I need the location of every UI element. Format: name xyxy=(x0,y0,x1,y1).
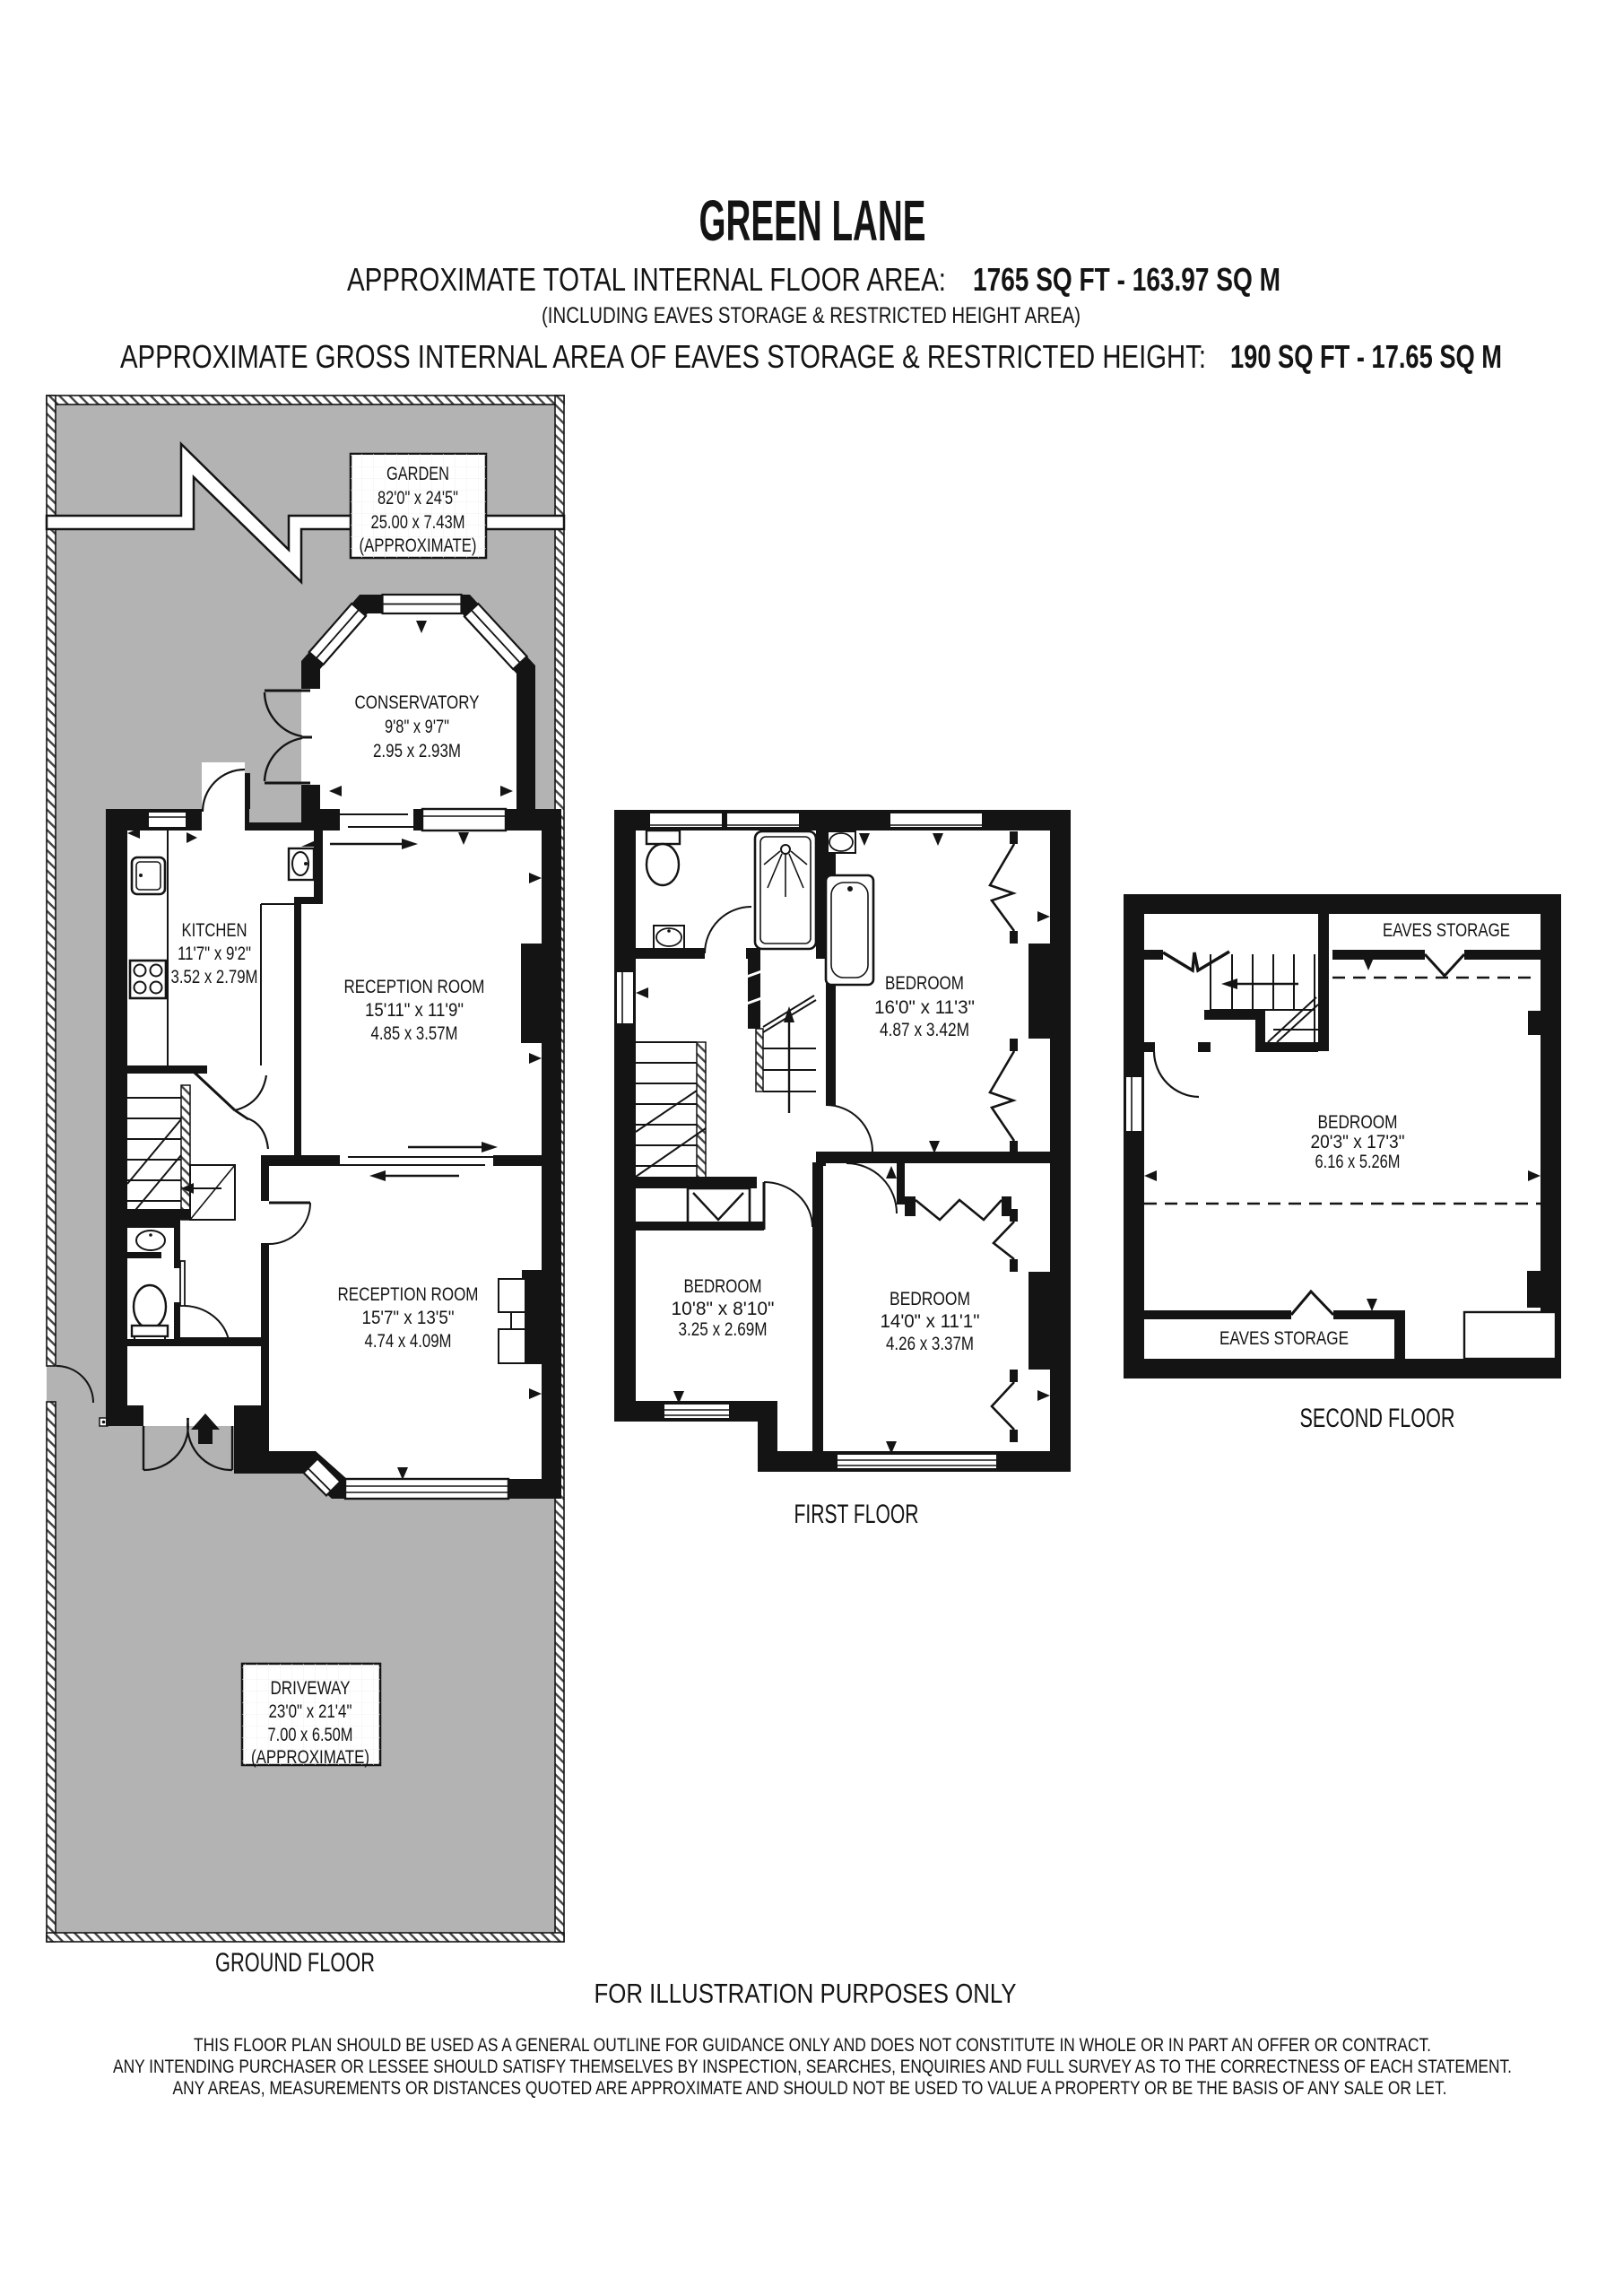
svg-text:14'0" x 11'1": 14'0" x 11'1" xyxy=(881,1311,980,1332)
svg-text:7.00 x 6.50M: 7.00 x 6.50M xyxy=(268,1725,353,1745)
svg-text:4.85 x 3.57M: 4.85 x 3.57M xyxy=(371,1023,458,1044)
svg-text:190 SQ FT - 17.65 SQ M: 190 SQ FT - 17.65 SQ M xyxy=(1230,338,1502,375)
svg-text:9'8" x 9'7": 9'8" x 9'7" xyxy=(385,717,449,737)
svg-text:APPROXIMATE GROSS INTERNAL ARE: APPROXIMATE GROSS INTERNAL AREA OF EAVES… xyxy=(120,338,1206,375)
svg-text:3.52 x 2.79M: 3.52 x 2.79M xyxy=(171,967,258,987)
svg-text:ANY INTENDING PURCHASER OR LES: ANY INTENDING PURCHASER OR LESSEE SHOULD… xyxy=(113,2057,1512,2077)
svg-text:(APPROXIMATE): (APPROXIMATE) xyxy=(360,535,477,556)
svg-text:(INCLUDING EAVES STORAGE & RES: (INCLUDING EAVES STORAGE & RESTRICTED HE… xyxy=(542,303,1081,328)
svg-text:3.25 x 2.69M: 3.25 x 2.69M xyxy=(679,1319,768,1340)
svg-text:RECEPTION ROOM: RECEPTION ROOM xyxy=(344,977,485,997)
svg-text:6.16 x 5.26M: 6.16 x 5.26M xyxy=(1315,1152,1401,1172)
svg-text:FOR ILLUSTRATION PURPOSES ONLY: FOR ILLUSTRATION PURPOSES ONLY xyxy=(595,1978,1017,2009)
svg-text:15'7" x 13'5": 15'7" x 13'5" xyxy=(362,1308,455,1328)
svg-text:(APPROXIMATE): (APPROXIMATE) xyxy=(251,1747,369,1768)
svg-text:25.00 x 7.43M: 25.00 x 7.43M xyxy=(371,512,465,533)
svg-text:10'8" x 8'10": 10'8" x 8'10" xyxy=(672,1299,775,1319)
svg-text:82'0" x 24'5": 82'0" x 24'5" xyxy=(378,488,458,509)
svg-text:20'3" x 17'3": 20'3" x 17'3" xyxy=(1311,1132,1405,1152)
svg-text:DRIVEWAY: DRIVEWAY xyxy=(271,1678,351,1699)
svg-text:SECOND FLOOR: SECOND FLOOR xyxy=(1300,1404,1455,1433)
svg-text:GROUND FLOOR: GROUND FLOOR xyxy=(215,1948,375,1978)
svg-text:FIRST FLOOR: FIRST FLOOR xyxy=(794,1500,919,1529)
svg-text:THIS FLOOR PLAN SHOULD BE USED: THIS FLOOR PLAN SHOULD BE USED AS A GENE… xyxy=(194,2035,1431,2056)
svg-text:BEDROOM: BEDROOM xyxy=(885,973,964,994)
svg-text:RECEPTION ROOM: RECEPTION ROOM xyxy=(338,1284,479,1305)
svg-text:BEDROOM: BEDROOM xyxy=(1318,1112,1398,1133)
svg-text:15'11" x 11'9": 15'11" x 11'9" xyxy=(365,1000,464,1021)
svg-text:16'0" x 11'3": 16'0" x 11'3" xyxy=(874,997,975,1018)
svg-text:4.26 x 3.37M: 4.26 x 3.37M xyxy=(886,1334,974,1354)
svg-text:EAVES STORAGE: EAVES STORAGE xyxy=(1383,920,1510,941)
svg-text:ANY AREAS, MEASUREMENTS OR DIS: ANY AREAS, MEASUREMENTS OR DISTANCES QUO… xyxy=(173,2078,1447,2099)
svg-text:APPROXIMATE TOTAL INTERNAL FLO: APPROXIMATE TOTAL INTERNAL FLOOR AREA: xyxy=(347,261,946,298)
svg-text:EAVES STORAGE: EAVES STORAGE xyxy=(1219,1328,1349,1349)
svg-text:11'7" x 9'2": 11'7" x 9'2" xyxy=(178,944,251,964)
svg-text:1765 SQ FT - 163.97 SQ M: 1765 SQ FT - 163.97 SQ M xyxy=(973,261,1280,298)
svg-text:4.87 x 3.42M: 4.87 x 3.42M xyxy=(880,1020,969,1040)
svg-text:GREEN LANE: GREEN LANE xyxy=(699,188,926,253)
svg-text:BEDROOM: BEDROOM xyxy=(890,1289,970,1309)
svg-text:4.74 x 4.09M: 4.74 x 4.09M xyxy=(365,1331,452,1352)
svg-text:GARDEN: GARDEN xyxy=(386,464,449,484)
svg-text:CONSERVATORY: CONSERVATORY xyxy=(355,692,480,713)
svg-text:KITCHEN: KITCHEN xyxy=(182,920,247,941)
svg-text:2.95 x 2.93M: 2.95 x 2.93M xyxy=(373,741,461,761)
svg-text:BEDROOM: BEDROOM xyxy=(684,1276,762,1297)
svg-text:23'0" x 21'4": 23'0" x 21'4" xyxy=(269,1701,352,1722)
